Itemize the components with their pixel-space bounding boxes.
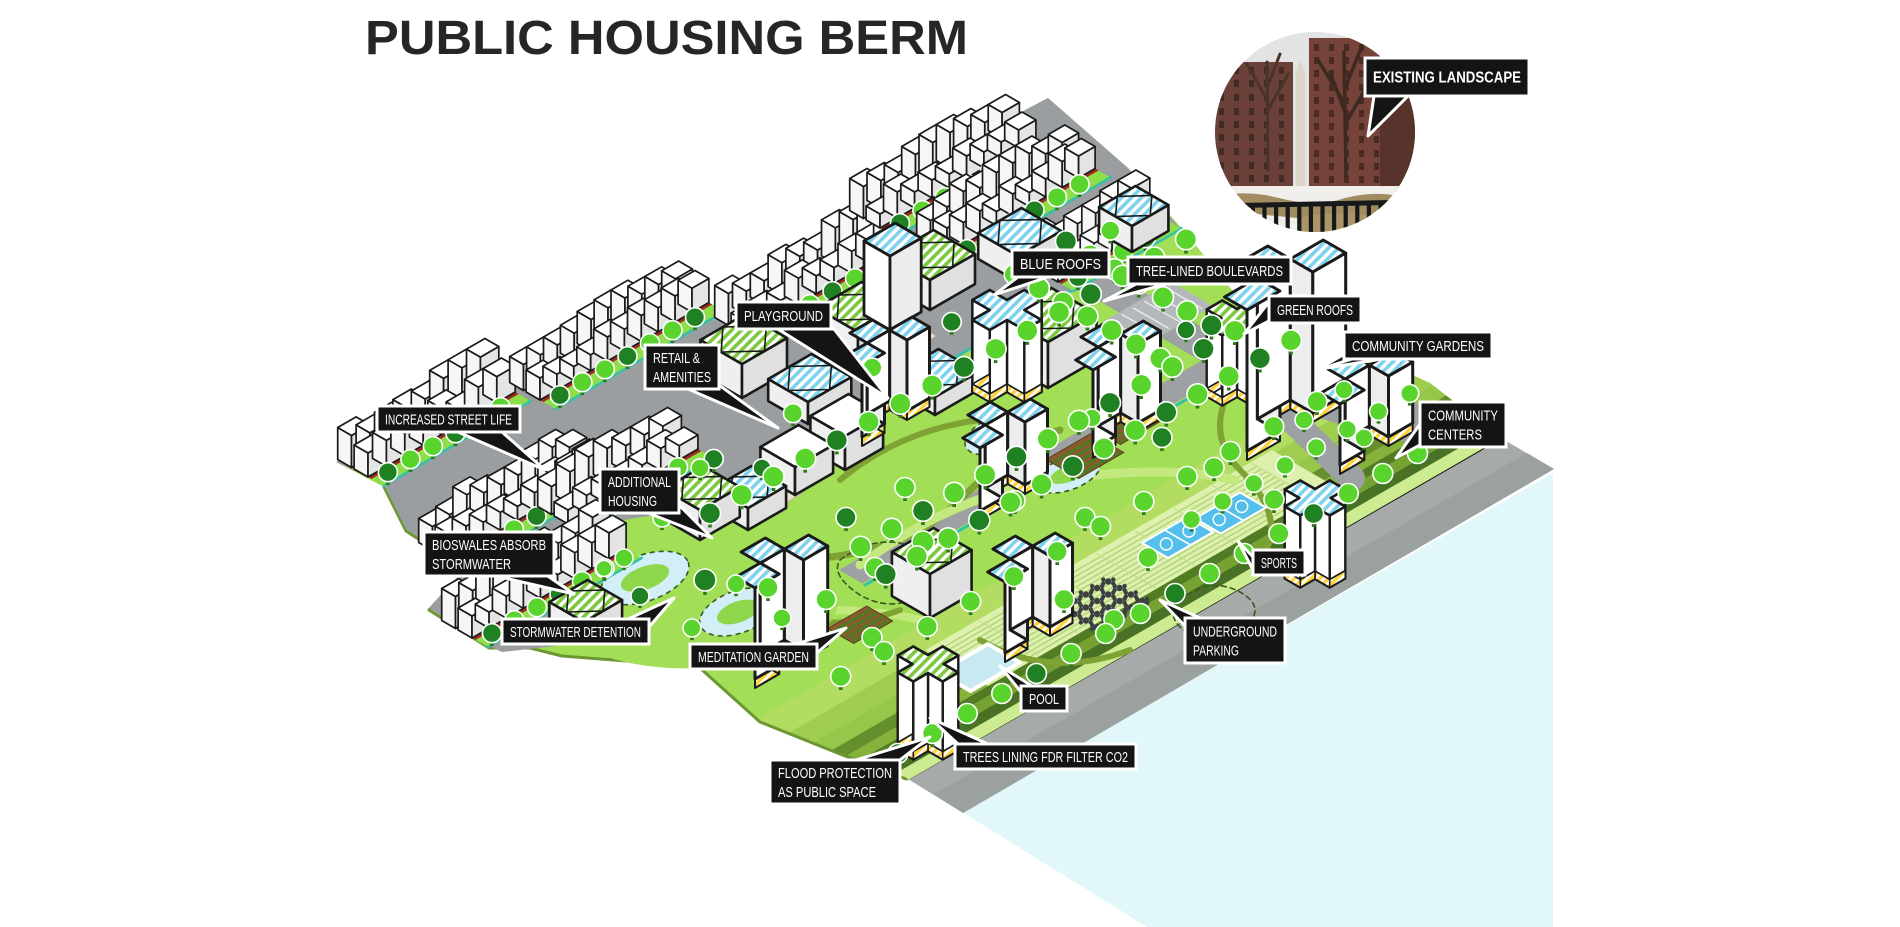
svg-text:TREES LINING FDR FILTER CO2: TREES LINING FDR FILTER CO2	[963, 749, 1128, 766]
svg-text:TREE-LINED BOULEVARDS: TREE-LINED BOULEVARDS	[1136, 263, 1283, 280]
svg-text:AMENITIES: AMENITIES	[653, 369, 711, 386]
svg-text:RETAIL &: RETAIL &	[653, 350, 700, 367]
svg-text:MEDITATION GARDEN: MEDITATION GARDEN	[698, 649, 809, 666]
svg-text:COMMUNITY: COMMUNITY	[1428, 408, 1498, 425]
svg-text:BLUE ROOFS: BLUE ROOFS	[1020, 256, 1101, 273]
svg-text:EXISTING LANDSCAPE: EXISTING LANDSCAPE	[1373, 70, 1521, 87]
svg-text:FLOOD PROTECTION: FLOOD PROTECTION	[778, 765, 892, 782]
svg-text:INCREASED STREET LIFE: INCREASED STREET LIFE	[385, 412, 512, 429]
svg-text:POOL: POOL	[1029, 691, 1059, 708]
svg-text:SPORTS: SPORTS	[1261, 555, 1297, 572]
svg-text:AS PUBLIC SPACE: AS PUBLIC SPACE	[778, 784, 876, 801]
svg-text:UNDERGROUND: UNDERGROUND	[1193, 624, 1277, 641]
svg-text:BIOSWALES ABSORB: BIOSWALES ABSORB	[432, 537, 546, 554]
svg-text:STORMWATER DETENTION: STORMWATER DETENTION	[510, 624, 641, 641]
svg-text:ADDITIONAL: ADDITIONAL	[608, 474, 671, 491]
svg-text:PUBLIC HOUSING BERM: PUBLIC HOUSING BERM	[365, 12, 968, 65]
svg-text:STORMWATER: STORMWATER	[432, 556, 511, 573]
svg-text:HOUSING: HOUSING	[608, 493, 657, 510]
svg-text:PLAYGROUND: PLAYGROUND	[744, 308, 823, 325]
svg-text:GREEN ROOFS: GREEN ROOFS	[1277, 302, 1353, 319]
svg-text:COMMUNITY GARDENS: COMMUNITY GARDENS	[1352, 338, 1484, 355]
svg-text:PARKING: PARKING	[1193, 643, 1239, 660]
svg-text:CENTERS: CENTERS	[1428, 427, 1482, 444]
